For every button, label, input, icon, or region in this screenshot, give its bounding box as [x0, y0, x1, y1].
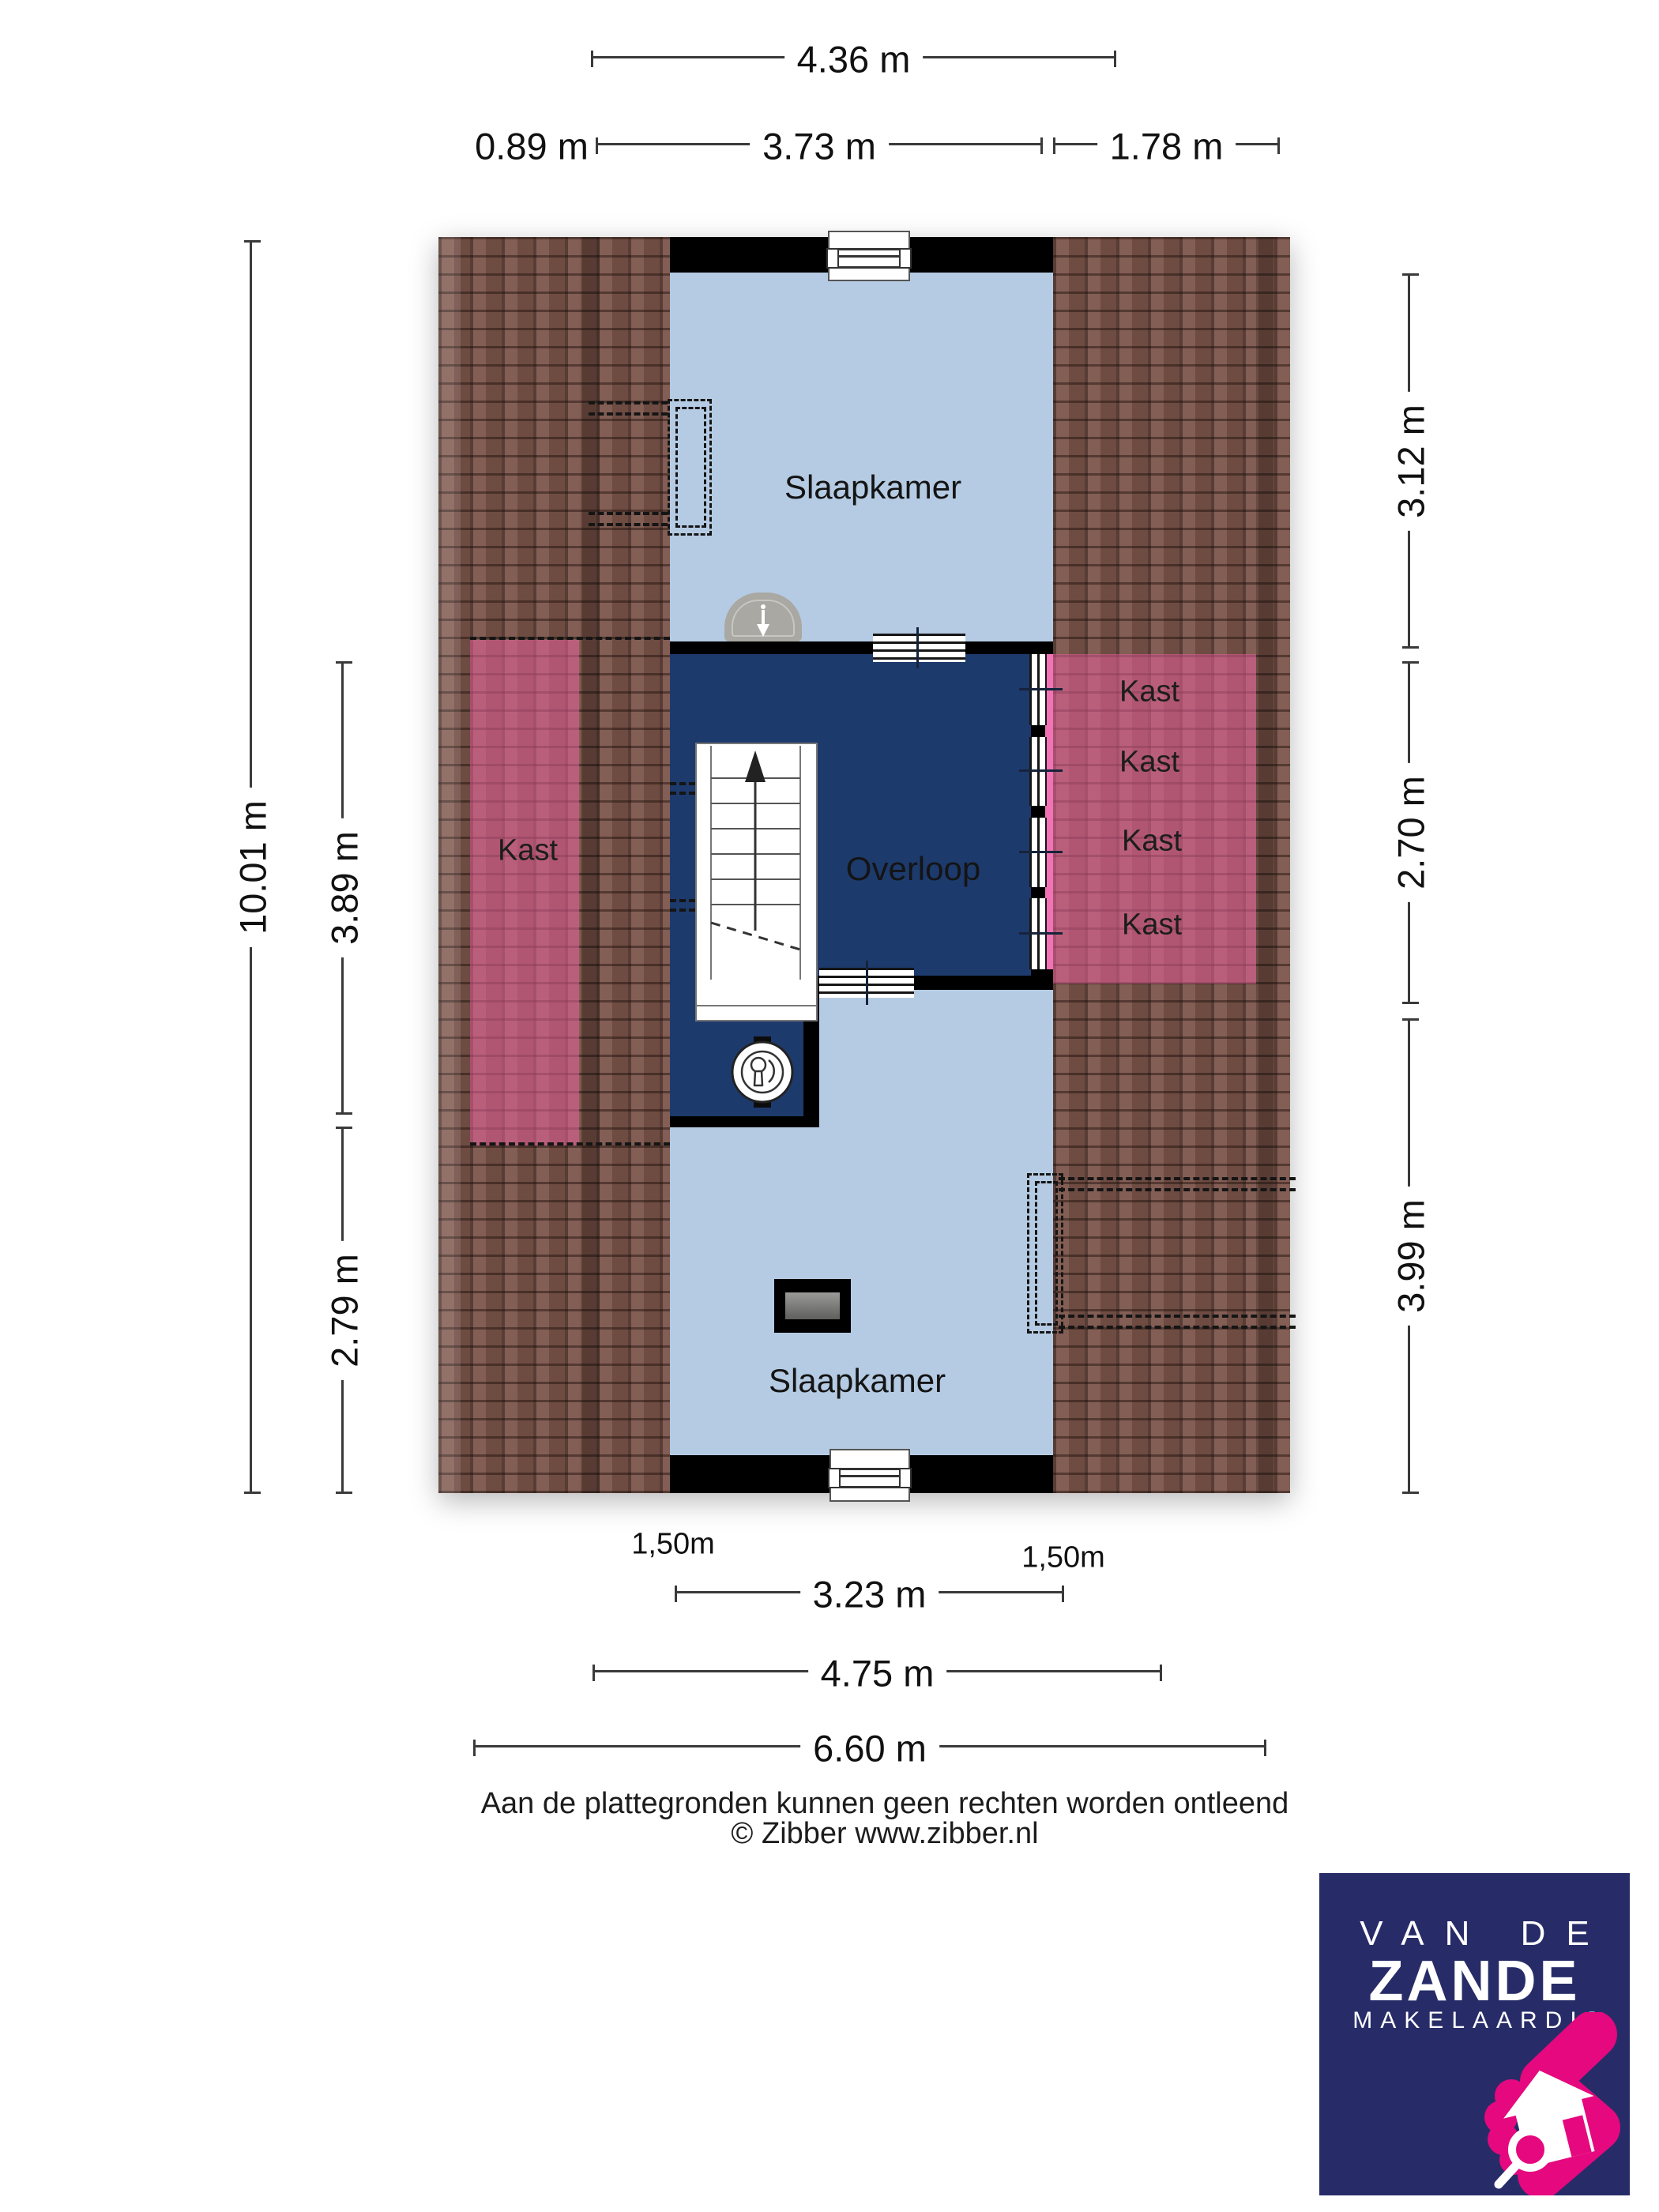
headroom-dashed-line — [670, 782, 695, 785]
dimension-left-seg2: 2.79 m — [341, 1127, 344, 1493]
wall-stub — [1031, 969, 1053, 990]
dimension-left-seg1: 3.89 m — [341, 662, 344, 1114]
dormer-dashed-line — [1059, 1326, 1296, 1329]
toilet-icon — [727, 1036, 798, 1108]
headroom-dashed-line — [670, 899, 695, 902]
headroom-label-right: 1,50m — [1021, 1541, 1105, 1575]
door-leaf-line — [1019, 688, 1063, 690]
room-label-bedroom-bottom: Slaapkamer — [769, 1362, 946, 1400]
chimney — [774, 1279, 851, 1333]
room-label-landing: Overloop — [846, 850, 980, 888]
floorplan: Slaapkamer Overloop Slaapkamer Kast Kast… — [438, 237, 1290, 1493]
door-leaf-line — [1019, 851, 1063, 853]
headroom-dashed-line — [670, 908, 695, 912]
dormer-dashed-line — [1059, 1315, 1296, 1318]
dormer-dashed-line — [589, 512, 668, 515]
room-label-closet-4: Kast — [1122, 908, 1182, 942]
dimension-label: 3.12 m — [1390, 392, 1433, 531]
dimension-bottom-seg1: 3.23 m — [675, 1591, 1063, 1593]
dimension-label: 10.01 m — [231, 788, 275, 947]
door-opening-bedroom-top — [873, 634, 965, 662]
disclaimer-text: Aan de plattegronden kunnen geen rechten… — [332, 1787, 1438, 1821]
door-leaf-line — [1019, 932, 1063, 935]
stairs-icon — [695, 743, 818, 1021]
dormer-dashed-line — [589, 412, 668, 416]
dimension-label: 0.89 m — [462, 125, 601, 168]
headroom-label-left: 1,50m — [631, 1528, 715, 1562]
dimension-label: 2.70 m — [1390, 763, 1433, 902]
room-label-closet-3: Kast — [1122, 825, 1182, 859]
dimension-right-seg3: 3.99 m — [1408, 1019, 1410, 1493]
roof-crease — [582, 237, 600, 1493]
room-label-closet-1: Kast — [1119, 675, 1179, 709]
dimension-label: 4.75 m — [808, 1652, 947, 1695]
dimension-label: 2.79 m — [323, 1241, 367, 1380]
headroom-dashed-line — [470, 1142, 670, 1145]
agency-logo: VAN DE ZANDE MAKELAARDIJ — [1319, 1873, 1630, 2195]
dormer-dashed-line — [589, 523, 668, 526]
dimension-bottom-seg3: 6.60 m — [474, 1745, 1266, 1747]
dimension-top-seg1: 0.89 m — [477, 143, 586, 145]
dormer-outline — [1035, 1181, 1058, 1326]
wall-nook-bottom — [670, 1116, 819, 1127]
headroom-dashed-line — [670, 792, 695, 795]
door-leaf-line — [1019, 769, 1063, 772]
roof-edge-highlight — [438, 237, 461, 1493]
dimension-label: 3.89 m — [323, 818, 367, 957]
door-leaf-line — [866, 961, 868, 1005]
logo-house-icon — [1453, 2012, 1630, 2195]
roof-crease — [1256, 237, 1273, 1493]
dimension-left-total: 10.01 m — [250, 241, 252, 1493]
dormer-dashed-line — [1059, 1177, 1296, 1180]
room-label-closet-2: Kast — [1119, 746, 1179, 780]
dormer-outline — [675, 407, 706, 528]
dimension-top-total: 4.36 m — [592, 56, 1115, 58]
bedroom-top-floor — [670, 273, 1053, 641]
dormer-dashed-line — [1059, 1188, 1296, 1191]
window-glazing — [839, 1468, 901, 1488]
dimension-right-seg2: 2.70 m — [1408, 662, 1410, 1003]
window-glazing — [837, 248, 901, 269]
dimension-label: 4.36 m — [784, 38, 924, 81]
dimension-top-seg3: 1.78 m — [1054, 143, 1279, 145]
headroom-dashed-line — [470, 637, 670, 640]
sink-icon — [724, 592, 802, 641]
dimension-label: 3.99 m — [1390, 1187, 1433, 1326]
dimension-label: 3.73 m — [750, 125, 889, 168]
window-icon — [828, 231, 910, 281]
logo-line2: ZANDE — [1319, 1949, 1630, 2014]
floorplan-page: Slaapkamer Overloop Slaapkamer Kast Kast… — [0, 0, 1659, 2212]
closet-left-overlay — [470, 640, 579, 1145]
dormer-dashed-line — [589, 401, 668, 404]
room-label-closet-left: Kast — [498, 834, 558, 868]
dimension-right-seg1: 3.12 m — [1408, 274, 1410, 648]
dimension-top-seg2: 3.73 m — [596, 143, 1042, 145]
dimension-label: 3.23 m — [800, 1573, 939, 1616]
dimension-bottom-seg2: 4.75 m — [593, 1670, 1161, 1672]
copyright-text: © Zibber www.zibber.nl — [332, 1817, 1438, 1851]
wall-bedroom-landing — [670, 641, 1053, 654]
dimension-label: 6.60 m — [800, 1727, 939, 1770]
room-label-bedroom-top: Slaapkamer — [784, 468, 961, 506]
window-icon — [829, 1449, 910, 1502]
door-leaf-line — [916, 627, 919, 668]
dimension-label: 1.78 m — [1097, 125, 1236, 168]
logo-line1: VAN DE — [1319, 1914, 1630, 1954]
